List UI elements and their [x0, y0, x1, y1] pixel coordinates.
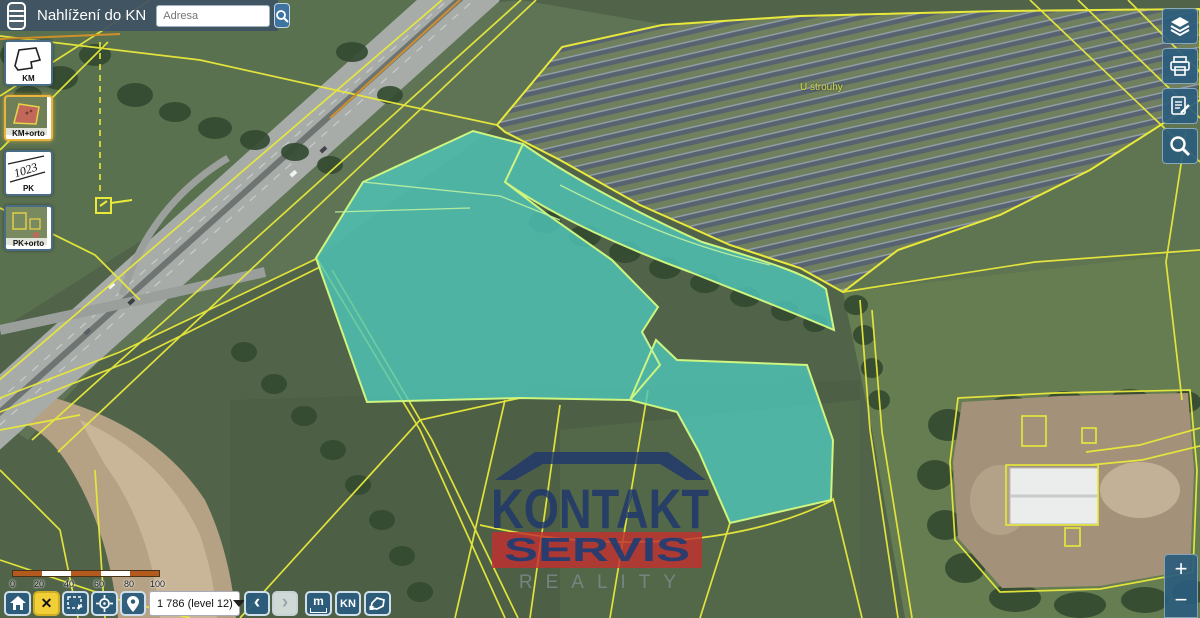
layer-label: PK+orto [6, 238, 51, 249]
layers-button[interactable] [1162, 8, 1198, 44]
app-title: Nahlížení do KN [37, 7, 146, 24]
search-button[interactable] [274, 3, 290, 28]
scalebar: 0 20 40 60 80 100 m [12, 570, 160, 577]
magnifier-icon [1168, 134, 1192, 158]
rect-select-icon [67, 596, 84, 611]
clear-selection-button[interactable]: ✕ [33, 591, 60, 616]
address-search-input[interactable] [156, 5, 270, 27]
zoom-in-button[interactable]: + [1165, 555, 1197, 586]
report-button[interactable] [1162, 88, 1198, 124]
right-toolbar [1162, 8, 1198, 164]
map-pin-icon [127, 596, 139, 612]
printer-icon [1169, 55, 1191, 77]
layers-icon [1169, 15, 1191, 37]
lasso-polygon-icon [369, 597, 386, 611]
scalebar-tick: 40 [64, 579, 74, 589]
measure-label: m [313, 595, 324, 607]
magnifier-icon [275, 9, 289, 23]
home-button[interactable] [4, 591, 31, 616]
map-place-label: U strouhy [800, 82, 843, 93]
print-button[interactable] [1162, 48, 1198, 84]
layer-button-km-orto[interactable]: KM+orto [4, 95, 53, 141]
map-canvas[interactable] [0, 0, 1200, 618]
polygon-select-button[interactable] [364, 591, 391, 616]
layer-label: KM+orto [6, 128, 51, 139]
scalebar-tick: 60 [94, 579, 104, 589]
layer-label: KM [6, 73, 51, 84]
crosshair-icon [96, 595, 113, 612]
layer-button-pk[interactable]: 1023 PK [4, 150, 53, 196]
top-header: Nahlížení do KN [0, 0, 278, 31]
locate-button[interactable] [91, 591, 118, 616]
marker-button[interactable] [120, 591, 146, 616]
zoom-controls: + − [1164, 554, 1198, 618]
menu-icon[interactable] [7, 2, 26, 30]
kn-info-button[interactable]: KN [335, 591, 361, 616]
report-pencil-icon [1169, 95, 1191, 117]
layer-switcher: KM KM+orto 1023 PK PK+orto [4, 40, 53, 251]
history-back-button[interactable]: ‹ [244, 591, 270, 616]
zoom-level-value: 1 786 (level 12) [157, 598, 233, 610]
history-forward-button[interactable]: › [272, 591, 298, 616]
home-icon [10, 596, 26, 611]
layer-button-km[interactable]: KM [4, 40, 53, 86]
rect-select-button[interactable] [62, 591, 89, 616]
ruler-icon: m [310, 595, 327, 613]
measure-button[interactable]: m [305, 591, 332, 616]
scalebar-tick: 0 [10, 579, 15, 589]
zoom-out-button[interactable]: − [1165, 586, 1197, 617]
app-window: KONTAKT SERVIS REALITY U strouhy Nahlíže… [0, 0, 1200, 618]
scalebar-tick: 80 [124, 579, 134, 589]
scalebar-tick: 20 [34, 579, 44, 589]
construction-site [953, 393, 1194, 588]
scalebar-strip [12, 570, 160, 577]
zoom-level-select[interactable]: 1 786 (level 12) [149, 591, 240, 616]
layer-label: PK [6, 183, 51, 194]
map-search-button[interactable] [1162, 128, 1198, 164]
layer-button-pk-orto[interactable]: PK+orto [4, 205, 53, 251]
